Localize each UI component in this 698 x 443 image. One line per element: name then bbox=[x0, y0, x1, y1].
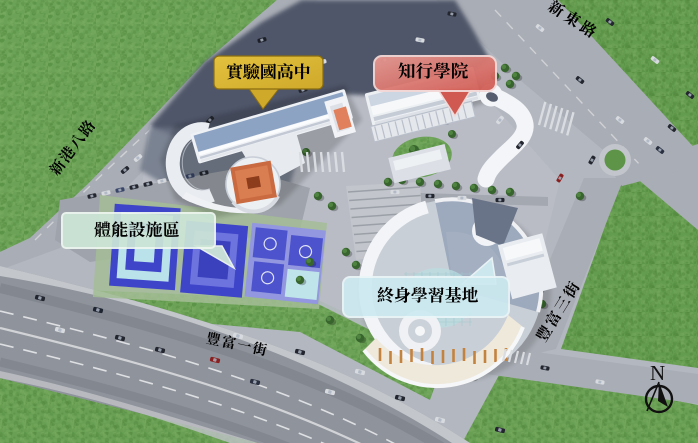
svg-text:N: N bbox=[650, 361, 665, 385]
